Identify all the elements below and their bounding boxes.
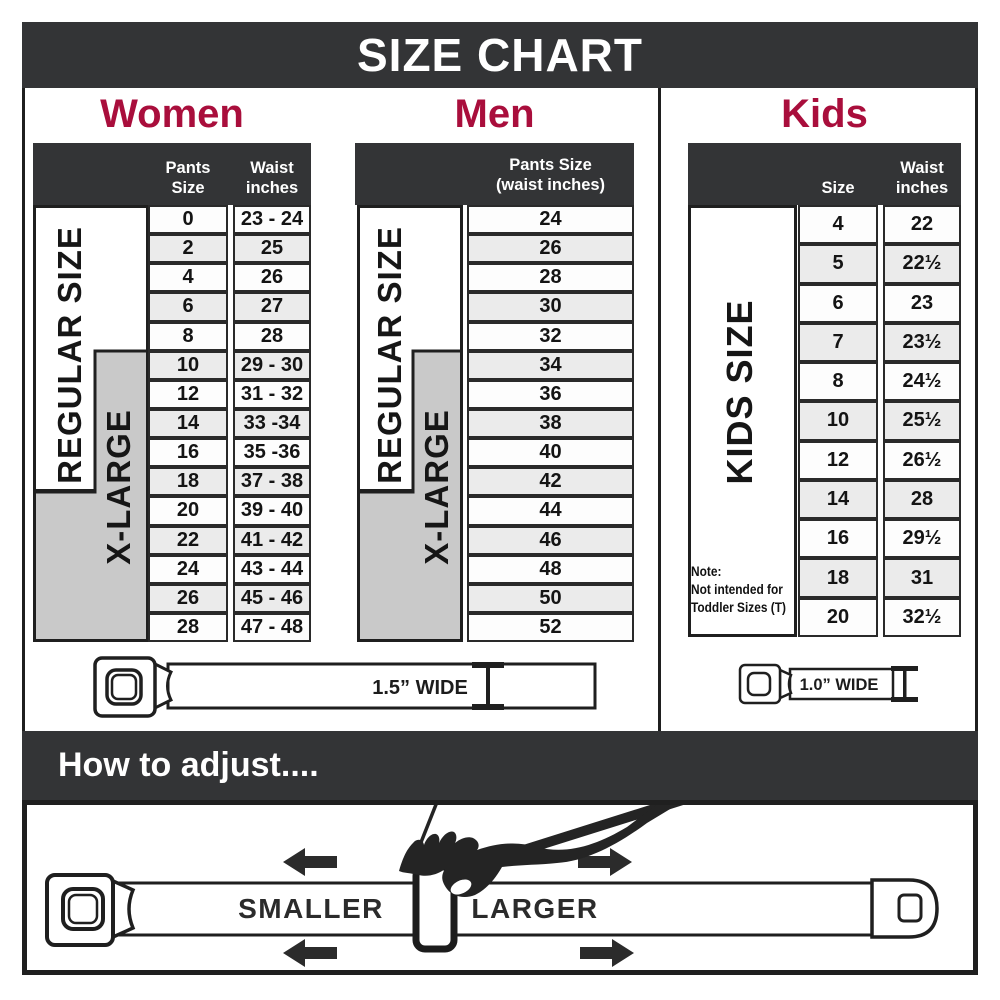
table-row: 6 23	[798, 284, 961, 323]
arrow-left-icon	[283, 939, 337, 967]
men-col-pants-size: Pants Size (waist inches)	[467, 156, 634, 195]
belt-width-label: 1.0” WIDE	[800, 676, 879, 694]
waist-inches-cell: 31	[883, 558, 961, 597]
waist-inches-cell: 22	[883, 205, 961, 244]
waist-inches-cell: 35 -36	[233, 438, 311, 467]
table-row: 20 32½	[798, 598, 961, 637]
table-row: 5 22½	[798, 244, 961, 283]
kids-col-waist: Waist inches	[883, 159, 961, 198]
table-row: 0 23 - 24	[148, 205, 311, 234]
pants-size-cell: 12	[148, 380, 228, 409]
waist-inches-cell: 22½	[883, 244, 961, 283]
how-to-adjust-heading: How to adjust....	[22, 731, 978, 800]
table-row: 16 29½	[798, 519, 961, 558]
table-row: 12 31 - 32	[148, 380, 311, 409]
toddler-note: Note: Not intended for Toddler Sizes (T)	[691, 562, 793, 617]
table-row: 10 25½	[798, 401, 961, 440]
waist-inches-cell: 28	[883, 480, 961, 519]
table-row: 24 43 - 44	[148, 555, 311, 584]
kids-table-header: Size Waist inches	[688, 143, 961, 205]
waist-inches-cell: 41 - 42	[233, 526, 311, 555]
women-col-waist: Waist inches	[233, 159, 311, 198]
kid-size-cell: 16	[798, 519, 878, 558]
waist-inches-cell: 32½	[883, 598, 961, 637]
waist-inches-cell: 23 - 24	[233, 205, 311, 234]
seatbelt-buckle-icon	[47, 875, 133, 945]
women-col-pants-size: Pants Size	[148, 159, 228, 198]
pants-size-cell: 4	[148, 263, 228, 292]
waist-inches-cell: 47 - 48	[233, 613, 311, 642]
kids-divider-line	[658, 88, 661, 731]
size-tables-panel: Women Men Kids Pants Size Waist inches R…	[22, 88, 978, 731]
belt-tip-icon	[872, 880, 937, 937]
table-row: 34	[467, 351, 634, 380]
women-size-range-labels: REGULAR SIZE X-LARGE	[33, 205, 149, 642]
pants-size-cell: 40	[467, 438, 634, 467]
table-row: 8 28	[148, 322, 311, 351]
pants-size-cell: 32	[467, 322, 634, 351]
left-border-line	[22, 88, 25, 731]
size-chart-banner: SIZE CHART	[22, 22, 978, 88]
table-row: 6 27	[148, 292, 311, 321]
table-row: 18 31	[798, 558, 961, 597]
table-row: 28 47 - 48	[148, 613, 311, 642]
table-row: 32	[467, 322, 634, 351]
how-to-adjust-banner: How to adjust....	[22, 731, 978, 800]
pants-size-cell: 14	[148, 409, 228, 438]
pants-size-cell: 28	[467, 263, 634, 292]
kid-size-cell: 7	[798, 323, 878, 362]
pants-size-cell: 10	[148, 351, 228, 380]
kid-size-cell: 10	[798, 401, 878, 440]
table-row: 20 39 - 40	[148, 496, 311, 525]
table-row: 36	[467, 380, 634, 409]
men-table-header: Pants Size (waist inches)	[355, 143, 634, 205]
kid-size-cell: 20	[798, 598, 878, 637]
men-size-range-labels: REGULAR SIZE X-LARGE	[357, 205, 463, 642]
waist-inches-cell: 28	[233, 322, 311, 351]
arrow-left-icon	[283, 848, 337, 876]
waist-inches-cell: 31 - 32	[233, 380, 311, 409]
waist-inches-cell: 25	[233, 234, 311, 263]
table-row: 28	[467, 263, 634, 292]
table-row: 12 26½	[798, 441, 961, 480]
kid-size-cell: 4	[798, 205, 878, 244]
table-row: 2 25	[148, 234, 311, 263]
pants-size-cell: 48	[467, 555, 634, 584]
seatbelt-buckle-icon	[740, 665, 791, 703]
pants-size-cell: 26	[148, 584, 228, 613]
table-row: 46	[467, 526, 634, 555]
table-row: 4 22	[798, 205, 961, 244]
kid-size-cell: 5	[798, 244, 878, 283]
pants-size-cell: 24	[148, 555, 228, 584]
pants-size-cell: 26	[467, 234, 634, 263]
kids-col-size: Size	[798, 179, 878, 198]
table-row: 44	[467, 496, 634, 525]
table-row: 50	[467, 584, 634, 613]
table-row: 48	[467, 555, 634, 584]
page-title: SIZE CHART	[357, 28, 643, 82]
pants-size-cell: 30	[467, 292, 634, 321]
pants-size-cell: 8	[148, 322, 228, 351]
waist-inches-cell: 33 -34	[233, 409, 311, 438]
pants-size-cell: 50	[467, 584, 634, 613]
belt-width-label: 1.5” WIDE	[372, 677, 468, 699]
men-size-table: 24 26 28 30 32 34 36 38 40 42 44 46	[467, 205, 634, 642]
belt-adjust-illustration: SMALLER LARGER	[27, 805, 973, 970]
table-row: 7 23½	[798, 323, 961, 362]
seatbelt-buckle-icon	[95, 658, 171, 716]
pants-size-cell: 0	[148, 205, 228, 234]
pants-size-cell: 38	[467, 409, 634, 438]
adjust-illustration-box: SMALLER LARGER	[22, 800, 978, 975]
waist-inches-cell: 37 - 38	[233, 467, 311, 496]
men-xlarge-label: X-LARGE	[418, 409, 455, 565]
kids-size-table: 4 22 5 22½ 6 23 7 23½ 8 24½ 10 25½ 12 26…	[798, 205, 961, 637]
table-row: 14 33 -34	[148, 409, 311, 438]
size-chart-page: SIZE CHART Women Men Kids Pants Size Wai…	[0, 0, 1000, 1000]
waist-inches-cell: 23½	[883, 323, 961, 362]
pants-size-cell: 6	[148, 292, 228, 321]
waist-inches-cell: 24½	[883, 362, 961, 401]
pants-size-cell: 16	[148, 438, 228, 467]
table-row: 40	[467, 438, 634, 467]
kid-size-cell: 12	[798, 441, 878, 480]
waist-inches-cell: 39 - 40	[233, 496, 311, 525]
adult-belt-illustration: 1.5” WIDE	[85, 650, 605, 722]
table-row: 14 28	[798, 480, 961, 519]
waist-inches-cell: 29 - 30	[233, 351, 311, 380]
pants-size-cell: 20	[148, 496, 228, 525]
pants-size-cell: 46	[467, 526, 634, 555]
table-row: 38	[467, 409, 634, 438]
waist-inches-cell: 27	[233, 292, 311, 321]
arrow-right-icon	[580, 939, 634, 967]
table-row: 24	[467, 205, 634, 234]
kid-size-cell: 18	[798, 558, 878, 597]
women-table-header: Pants Size Waist inches	[33, 143, 311, 205]
pants-size-cell: 22	[148, 526, 228, 555]
waist-inches-cell: 26	[233, 263, 311, 292]
larger-label: LARGER	[471, 893, 598, 924]
pants-size-cell: 24	[467, 205, 634, 234]
table-row: 30	[467, 292, 634, 321]
kid-size-cell: 6	[798, 284, 878, 323]
waist-inches-cell: 29½	[883, 519, 961, 558]
waist-inches-cell: 45 - 46	[233, 584, 311, 613]
table-row: 16 35 -36	[148, 438, 311, 467]
table-row: 22 41 - 42	[148, 526, 311, 555]
table-row: 18 37 - 38	[148, 467, 311, 496]
pants-size-cell: 36	[467, 380, 634, 409]
table-row: 26 45 - 46	[148, 584, 311, 613]
pants-size-cell: 44	[467, 496, 634, 525]
table-row: 26	[467, 234, 634, 263]
table-row: 52	[467, 613, 634, 642]
women-xlarge-label: X-LARGE	[100, 409, 137, 565]
men-section-title: Men	[355, 92, 634, 137]
table-row: 42	[467, 467, 634, 496]
kid-size-cell: 8	[798, 362, 878, 401]
women-section-title: Women	[33, 92, 311, 137]
pants-size-cell: 34	[467, 351, 634, 380]
waist-inches-cell: 25½	[883, 401, 961, 440]
waist-inches-cell: 26½	[883, 441, 961, 480]
kids-belt-illustration: 1.0” WIDE	[735, 658, 931, 710]
pants-size-cell: 52	[467, 613, 634, 642]
kids-size-label: KIDS SIZE	[719, 299, 760, 484]
pants-size-cell: 2	[148, 234, 228, 263]
women-regular-size-label: REGULAR SIZE	[51, 226, 88, 484]
men-regular-size-label: REGULAR SIZE	[371, 226, 408, 484]
kids-section-title: Kids	[688, 92, 961, 137]
kid-size-cell: 14	[798, 480, 878, 519]
waist-inches-cell: 23	[883, 284, 961, 323]
table-row: 10 29 - 30	[148, 351, 311, 380]
pants-size-cell: 42	[467, 467, 634, 496]
pants-size-cell: 28	[148, 613, 228, 642]
smaller-label: SMALLER	[238, 893, 384, 924]
table-row: 8 24½	[798, 362, 961, 401]
waist-inches-cell: 43 - 44	[233, 555, 311, 584]
women-size-table: 0 23 - 24 2 25 4 26 6 27 8 28 10 29 - 30…	[148, 205, 311, 642]
right-border-line	[975, 88, 978, 731]
table-row: 4 26	[148, 263, 311, 292]
pants-size-cell: 18	[148, 467, 228, 496]
width-gauge-icon	[891, 666, 918, 702]
